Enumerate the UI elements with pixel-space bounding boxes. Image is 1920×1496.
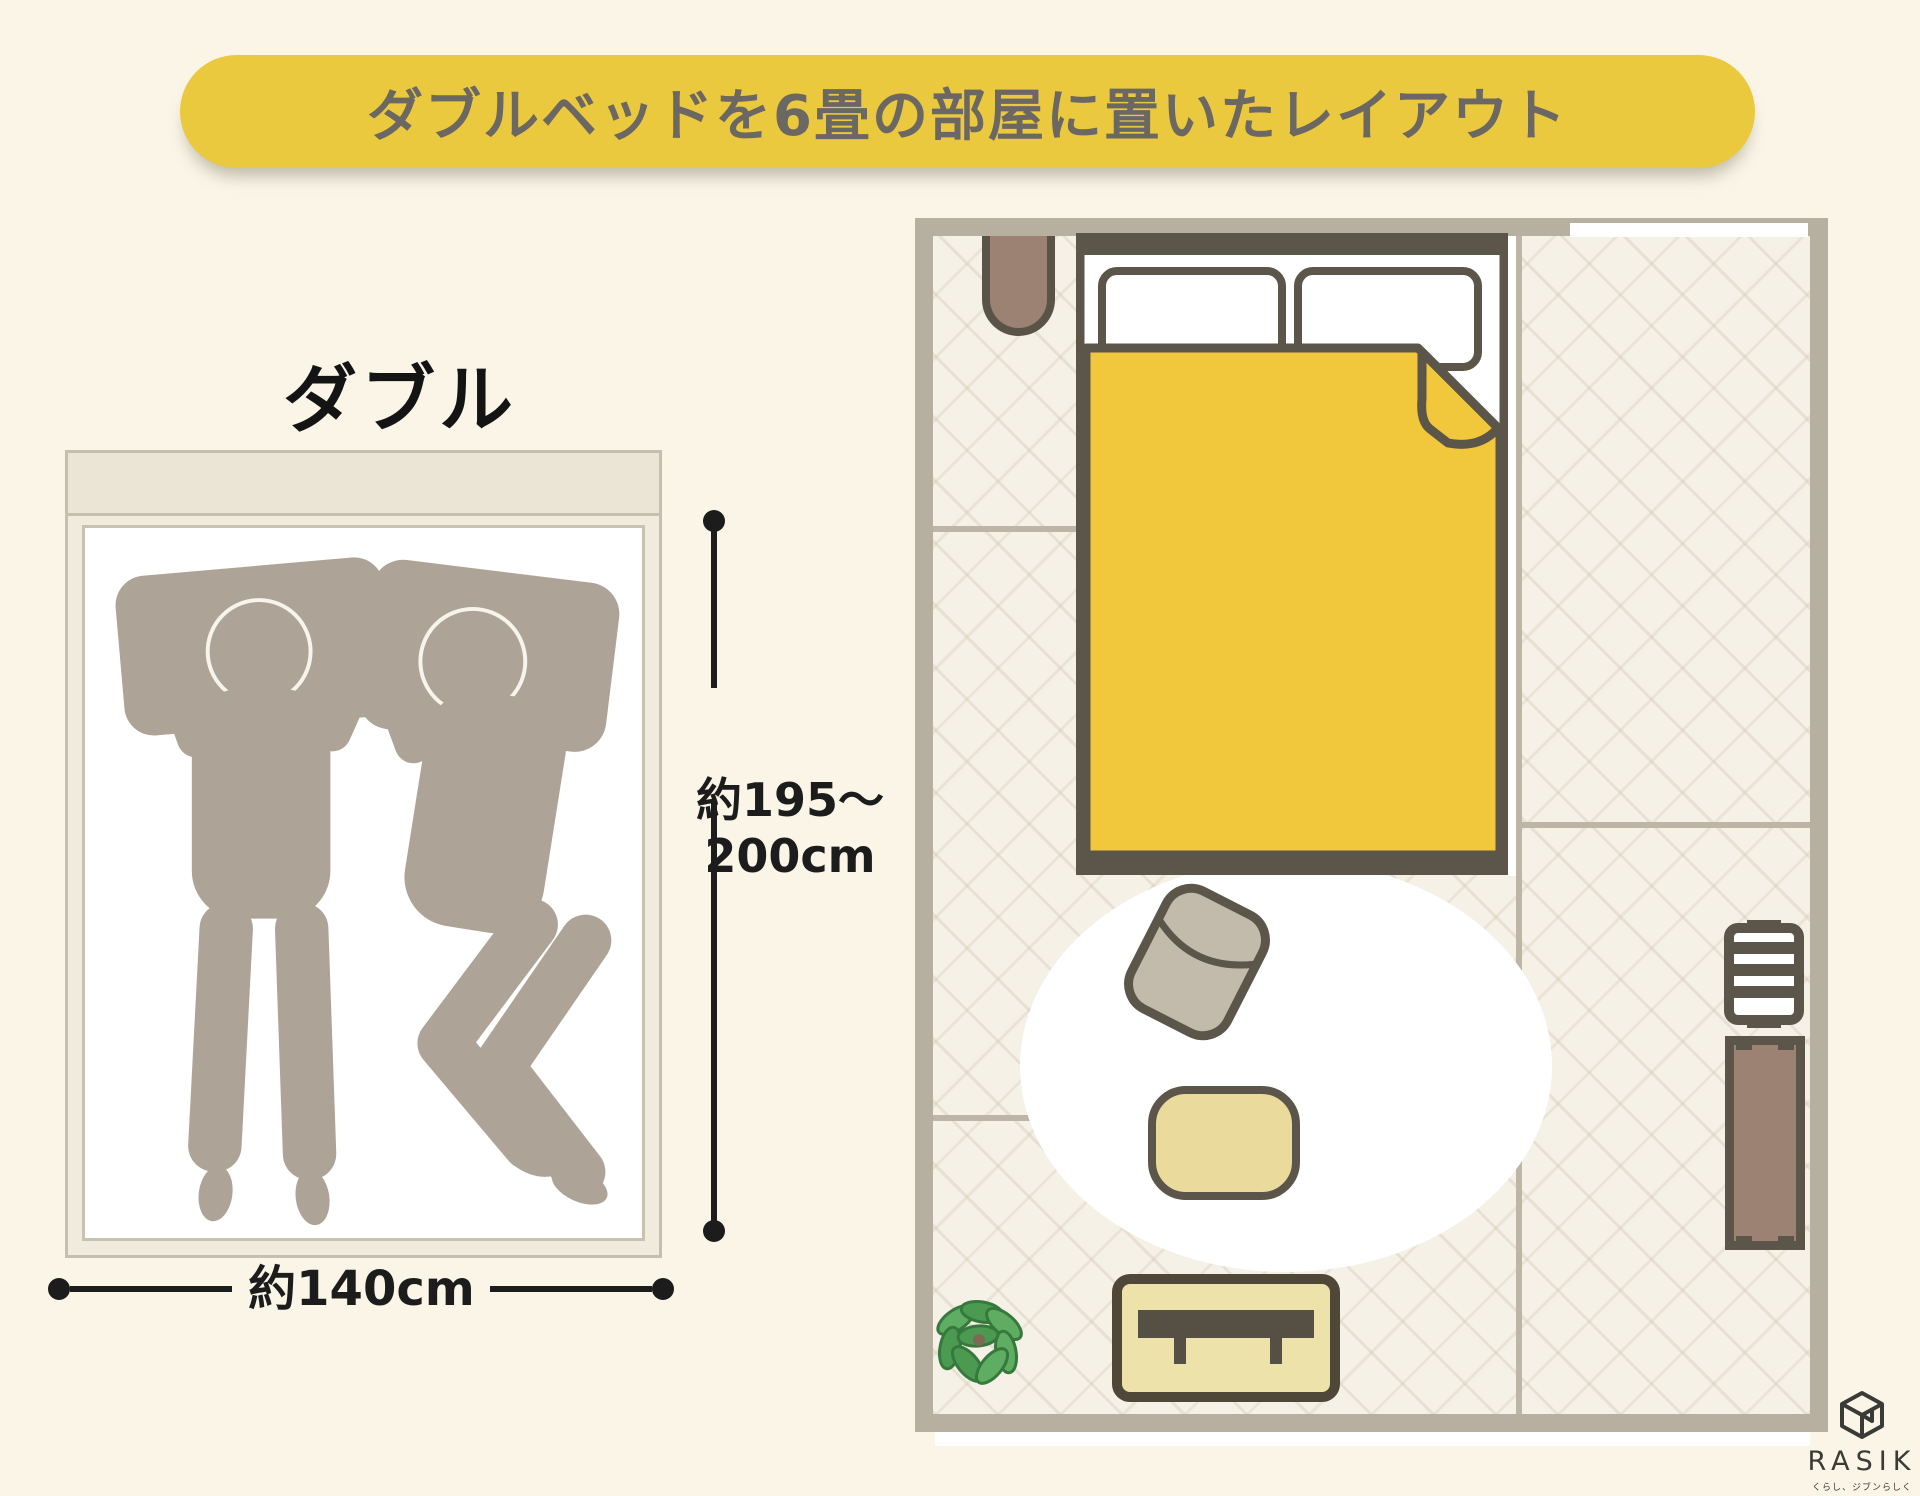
slatted-rack <box>1723 920 1805 1028</box>
dim-line-width-left <box>70 1286 232 1292</box>
head-left <box>208 600 311 703</box>
dim-dot-right <box>652 1278 674 1300</box>
bed-headboard <box>68 453 659 516</box>
page-title: ダブルベッドを6畳の部屋に置いたレイアウト <box>367 71 1568 152</box>
dim-line-length-lower <box>711 800 717 1224</box>
tv <box>1138 1310 1314 1338</box>
tv-board <box>1112 1274 1340 1402</box>
dim-label-width: 約140cm <box>235 1260 488 1319</box>
bed-size-label: ダブル <box>230 340 570 447</box>
plan-bottom-margin <box>935 1432 1810 1446</box>
floor-cushion <box>1122 864 1272 1060</box>
sleepers-silhouette-icon <box>85 528 642 1238</box>
dim-label-length: 約195〜 200cm <box>620 772 960 884</box>
dim-dot-left <box>48 1278 70 1300</box>
chest <box>1725 1036 1805 1250</box>
dim-line-length-upper <box>711 528 717 688</box>
plant-icon <box>928 1290 1030 1388</box>
double-bed <box>1076 233 1508 875</box>
chest-foot <box>1778 1038 1794 1050</box>
chest-foot <box>1736 1236 1752 1248</box>
tatami-divider-left-upper <box>933 526 1076 532</box>
title-banner: ダブルベッドを6畳の部屋に置いたレイアウト <box>180 55 1755 168</box>
dim-line-width-right <box>490 1286 652 1292</box>
brand-tagline: くらし、ジブンらしく <box>1800 1480 1920 1493</box>
tv-leg <box>1174 1338 1186 1364</box>
window <box>1570 223 1808 237</box>
tatami-divider-right <box>1522 822 1810 828</box>
low-table <box>1148 1086 1300 1200</box>
bed-headboard-bar <box>1076 233 1508 255</box>
tv-leg <box>1270 1338 1282 1364</box>
cube-logo-icon <box>1839 1390 1885 1440</box>
bed-size-diagram <box>65 450 662 1258</box>
chest-foot <box>1778 1236 1794 1248</box>
wall-light-icon <box>982 236 1055 336</box>
bed-mattress <box>82 525 645 1241</box>
dim-dot-bottom <box>703 1220 725 1242</box>
brand-logo: RASIK くらし、ジブンらしく <box>1800 1390 1920 1493</box>
brand-name: RASIK <box>1800 1446 1920 1477</box>
round-rug <box>1020 860 1552 1272</box>
chest-foot <box>1736 1038 1752 1050</box>
